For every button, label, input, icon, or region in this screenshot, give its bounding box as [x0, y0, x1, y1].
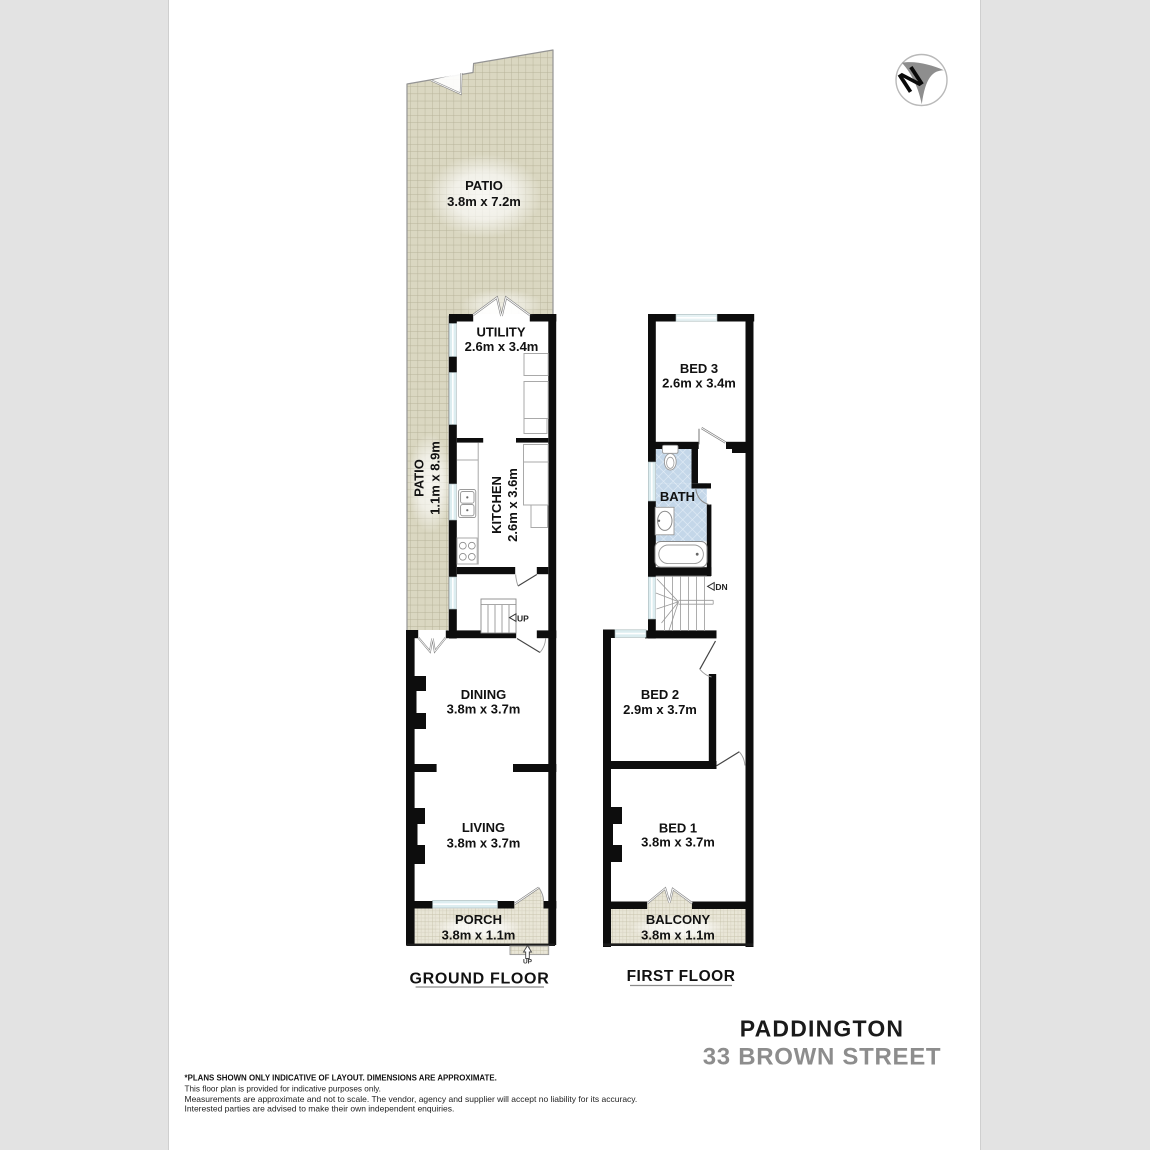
svg-text:BED 2: BED 2	[641, 687, 679, 702]
svg-text:PADDINGTON: PADDINGTON	[740, 1016, 905, 1042]
svg-text:3.8m x 3.7m: 3.8m x 3.7m	[447, 702, 521, 717]
svg-text:BED 3: BED 3	[680, 361, 718, 376]
svg-text:3.8m x 3.7m: 3.8m x 3.7m	[641, 835, 715, 850]
svg-text:This floor plan is provided fo: This floor plan is provided for indicati…	[185, 1085, 381, 1094]
svg-text:UP: UP	[517, 613, 529, 623]
svg-text:2.9m x 3.7m: 2.9m x 3.7m	[623, 702, 697, 717]
svg-text:KITCHEN: KITCHEN	[489, 476, 504, 534]
svg-text:BALCONY: BALCONY	[646, 912, 711, 927]
svg-text:BED 1: BED 1	[659, 821, 697, 836]
svg-text:2.6m x 3.6m: 2.6m x 3.6m	[505, 468, 520, 542]
svg-text:Interested parties are advised: Interested parties are advised to make t…	[185, 1103, 455, 1113]
svg-text:3.8m x 7.2m: 3.8m x 7.2m	[447, 194, 521, 209]
svg-text:GROUND FLOOR: GROUND FLOOR	[410, 971, 550, 988]
svg-text:DINING: DINING	[461, 687, 507, 702]
svg-text:3.8m x 1.1m: 3.8m x 1.1m	[641, 928, 715, 943]
svg-text:33 BROWN STREET: 33 BROWN STREET	[703, 1044, 942, 1071]
svg-text:3.8m x 1.1m: 3.8m x 1.1m	[442, 928, 516, 943]
svg-text:2.6m x 3.4m: 2.6m x 3.4m	[465, 339, 539, 354]
svg-text:Measurements are approximate a: Measurements are approximate and not to …	[185, 1094, 638, 1104]
svg-text:LIVING: LIVING	[462, 820, 505, 835]
svg-text:UTILITY: UTILITY	[476, 325, 525, 340]
svg-text:1.1m x 8.9m: 1.1m x 8.9m	[428, 441, 443, 515]
svg-text:3.8m x 3.7m: 3.8m x 3.7m	[447, 836, 521, 851]
svg-text:FIRST FLOOR: FIRST FLOOR	[627, 968, 736, 985]
svg-text:PORCH: PORCH	[455, 912, 502, 927]
svg-text:BATH: BATH	[660, 489, 695, 504]
svg-text:UP: UP	[523, 959, 533, 966]
svg-text:2.6m x 3.4m: 2.6m x 3.4m	[662, 376, 736, 391]
svg-text:PATIO: PATIO	[465, 178, 503, 193]
svg-text:*PLANS SHOWN ONLY INDICATIVE O: *PLANS SHOWN ONLY INDICATIVE OF LAYOUT. …	[185, 1074, 497, 1083]
svg-text:DN: DN	[715, 582, 727, 592]
svg-text:PATIO: PATIO	[412, 459, 427, 497]
